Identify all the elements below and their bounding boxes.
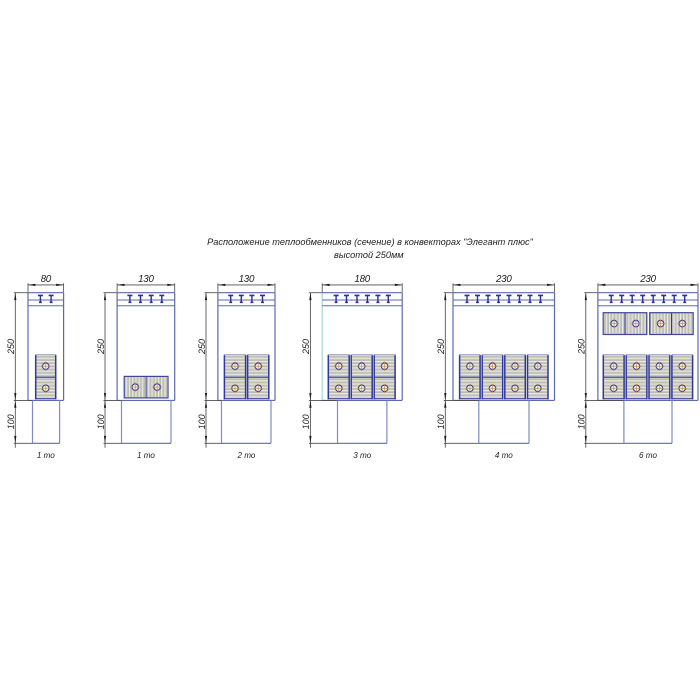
svg-text:100: 100	[301, 414, 311, 429]
svg-text:250: 250	[6, 339, 16, 355]
svg-text:250: 250	[301, 339, 311, 355]
svg-text:3 то: 3 то	[353, 451, 371, 460]
svg-text:250: 250	[577, 339, 587, 355]
svg-text:250: 250	[197, 339, 207, 355]
svg-text:130: 130	[239, 274, 255, 285]
svg-text:4 то: 4 то	[495, 451, 513, 460]
svg-text:100: 100	[577, 414, 587, 429]
svg-text:230: 230	[639, 274, 656, 285]
svg-text:250: 250	[436, 339, 446, 355]
svg-text:100: 100	[436, 414, 446, 429]
svg-text:180: 180	[354, 274, 370, 285]
svg-text:100: 100	[6, 414, 16, 429]
svg-text:Расположение теплообменников (: Расположение теплообменников (сечение) в…	[207, 237, 533, 247]
svg-text:2 то: 2 то	[236, 451, 255, 460]
svg-text:100: 100	[197, 414, 207, 429]
svg-text:100: 100	[96, 414, 106, 429]
svg-text:1 то: 1 то	[37, 451, 55, 460]
svg-text:250: 250	[96, 339, 106, 355]
svg-text:высотой 250мм: высотой 250мм	[334, 250, 404, 260]
svg-text:6 то: 6 то	[639, 451, 657, 460]
svg-text:80: 80	[41, 274, 52, 285]
svg-text:130: 130	[138, 274, 154, 285]
svg-text:230: 230	[495, 274, 512, 285]
svg-text:1 то: 1 то	[137, 451, 155, 460]
